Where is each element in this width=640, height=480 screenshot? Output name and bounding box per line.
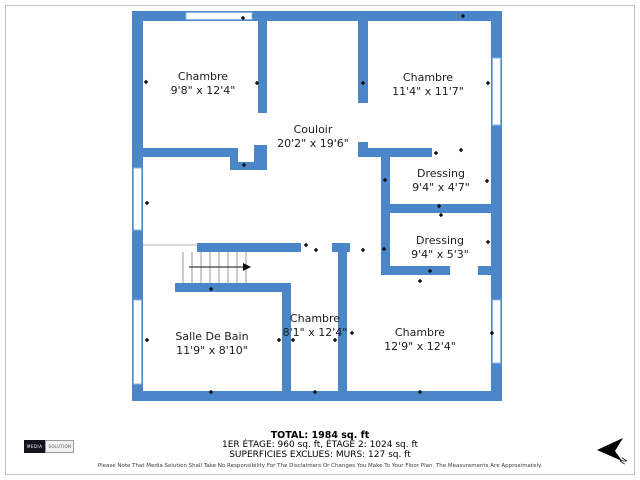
room-dims: 8'1" x 12'4" [283, 326, 348, 339]
room-label-chambre-bottom-right: Chambre 12'9" x 12'4" [384, 326, 456, 353]
room-label-salle-de-bain: Salle De Bain 11'9" x 8'10" [175, 330, 248, 357]
room-dims: 9'8" x 12'4" [171, 84, 236, 97]
window [134, 168, 142, 230]
floor-plan-drawing: Chambre 9'8" x 12'4" Chambre 11'4" x 11'… [0, 0, 640, 480]
room-label-chambre-middle: Chambre 8'1" x 12'4" [283, 312, 348, 339]
room-name: Chambre [178, 70, 228, 83]
window [493, 58, 501, 125]
room-dims: 12'9" x 12'4" [384, 340, 456, 353]
room-labels: Chambre 9'8" x 12'4" Chambre 11'4" x 11'… [171, 70, 470, 357]
window [493, 300, 501, 363]
media-solution-logo: MEDIA SOLUTION [24, 440, 74, 453]
room-dims: 11'4" x 11'7" [392, 85, 464, 98]
room-name: Chambre [395, 326, 445, 339]
room-name: Couloir [294, 123, 333, 136]
plan-summary: TOTAL: 1984 sq. ft 1ER ÉTAGE: 960 sq. ft… [0, 431, 640, 469]
room-label-couloir: Couloir 20'2" x 19'6" [277, 123, 349, 150]
excluded-areas: SUPERFICIES EXCLUES: MURS: 127 sq. ft [0, 451, 640, 461]
logo-left: MEDIA [24, 440, 45, 453]
room-label-dressing-2: Dressing 9'4" x 5'3" [411, 234, 469, 261]
room-name: Dressing [417, 167, 465, 180]
north-label: N [618, 456, 629, 466]
floor-plan-page: Chambre 9'8" x 12'4" Chambre 11'4" x 11'… [0, 0, 640, 480]
disclaimer-text: Please Note That Media Solution Shall Ta… [0, 463, 640, 469]
room-label-chambre-top-left: Chambre 9'8" x 12'4" [171, 70, 236, 97]
window [134, 300, 142, 384]
room-dims: 9'4" x 4'7" [412, 181, 470, 194]
room-dims: 9'4" x 5'3" [411, 248, 469, 261]
room-label-dressing-1: Dressing 9'4" x 4'7" [412, 167, 470, 194]
room-name: Chambre [403, 71, 453, 84]
logo-right: SOLUTION [45, 440, 74, 453]
room-name: Chambre [290, 312, 340, 325]
room-dims: 11'9" x 8'10" [176, 344, 248, 357]
room-label-chambre-top-right: Chambre 11'4" x 11'7" [392, 71, 464, 98]
room-dims: 20'2" x 19'6" [277, 137, 349, 150]
stair-direction-arrow [189, 263, 251, 271]
room-name: Salle De Bain [175, 330, 248, 343]
north-arrow-icon: N [585, 428, 635, 478]
room-name: Dressing [416, 234, 464, 247]
